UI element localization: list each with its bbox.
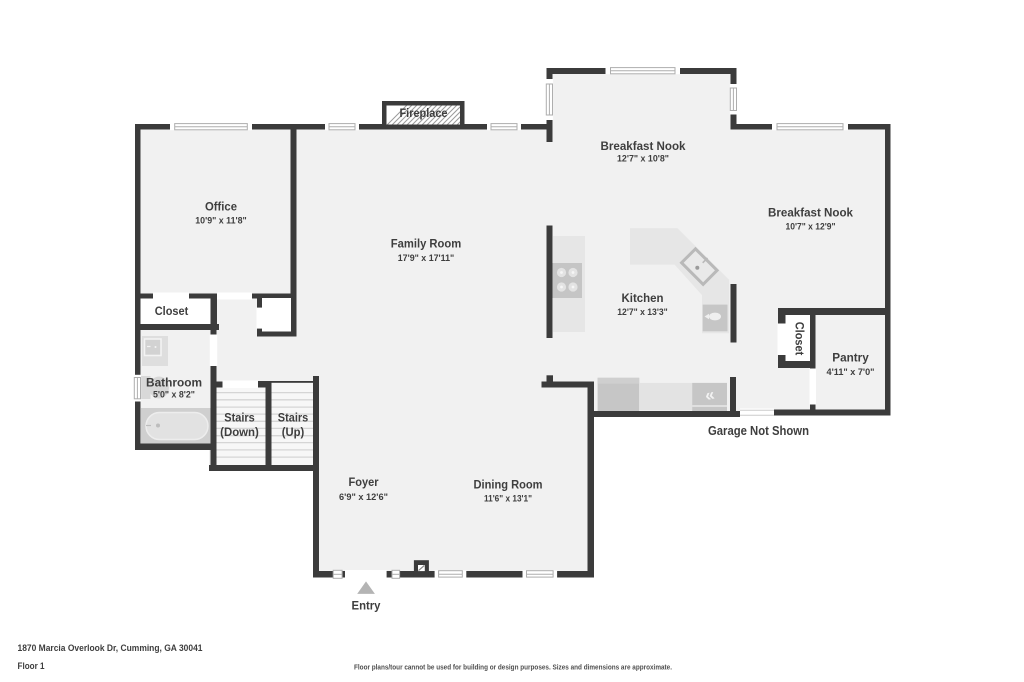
svg-text:10'7" x 12'9": 10'7" x 12'9" — [786, 222, 836, 233]
svg-text:12'7" x 10'8": 12'7" x 10'8" — [617, 154, 669, 165]
svg-text:Foyer: Foyer — [349, 475, 379, 489]
svg-text:Stairs: Stairs — [278, 412, 309, 424]
svg-text:Floor plans/tour cannot be use: Floor plans/tour cannot be used for buil… — [354, 665, 672, 672]
svg-text:Entry: Entry — [352, 599, 381, 613]
svg-text:5'0" x 8'2": 5'0" x 8'2" — [153, 390, 195, 401]
svg-text:Breakfast Nook: Breakfast Nook — [601, 139, 686, 153]
svg-text:Kitchen: Kitchen — [622, 291, 664, 305]
svg-text:1870 Marcia Overlook Dr, Cummi: 1870 Marcia Overlook Dr, Cumming, GA 300… — [18, 643, 203, 653]
svg-text:4'11" x 7'0": 4'11" x 7'0" — [827, 367, 875, 378]
svg-text:Dining Room: Dining Room — [474, 478, 543, 492]
svg-text:Bathroom: Bathroom — [146, 376, 202, 390]
svg-text:Closet: Closet — [155, 306, 189, 318]
svg-text:Stairs: Stairs — [224, 412, 255, 424]
svg-text:Breakfast Nook: Breakfast Nook — [768, 206, 853, 220]
svg-text:10'9" x 11'8": 10'9" x 11'8" — [195, 216, 247, 227]
svg-text:Floor 1: Floor 1 — [18, 661, 45, 671]
svg-text:Pantry: Pantry — [832, 351, 869, 365]
svg-text:Fireplace: Fireplace — [400, 108, 448, 120]
svg-text:12'7" x 13'3": 12'7" x 13'3" — [617, 307, 668, 318]
svg-text:17'9" x 17'11": 17'9" x 17'11" — [398, 253, 455, 264]
svg-text:Office: Office — [205, 200, 237, 214]
svg-text:11'6" x 13'1": 11'6" x 13'1" — [484, 493, 532, 504]
svg-text:(Down): (Down) — [220, 427, 259, 439]
svg-text:Family Room: Family Room — [391, 236, 462, 250]
svg-text:Garage Not Shown: Garage Not Shown — [708, 424, 809, 438]
svg-text:6'9" x 12'6": 6'9" x 12'6" — [339, 492, 388, 503]
svg-text:(Up): (Up) — [282, 427, 305, 439]
svg-text:Closet: Closet — [793, 322, 805, 356]
